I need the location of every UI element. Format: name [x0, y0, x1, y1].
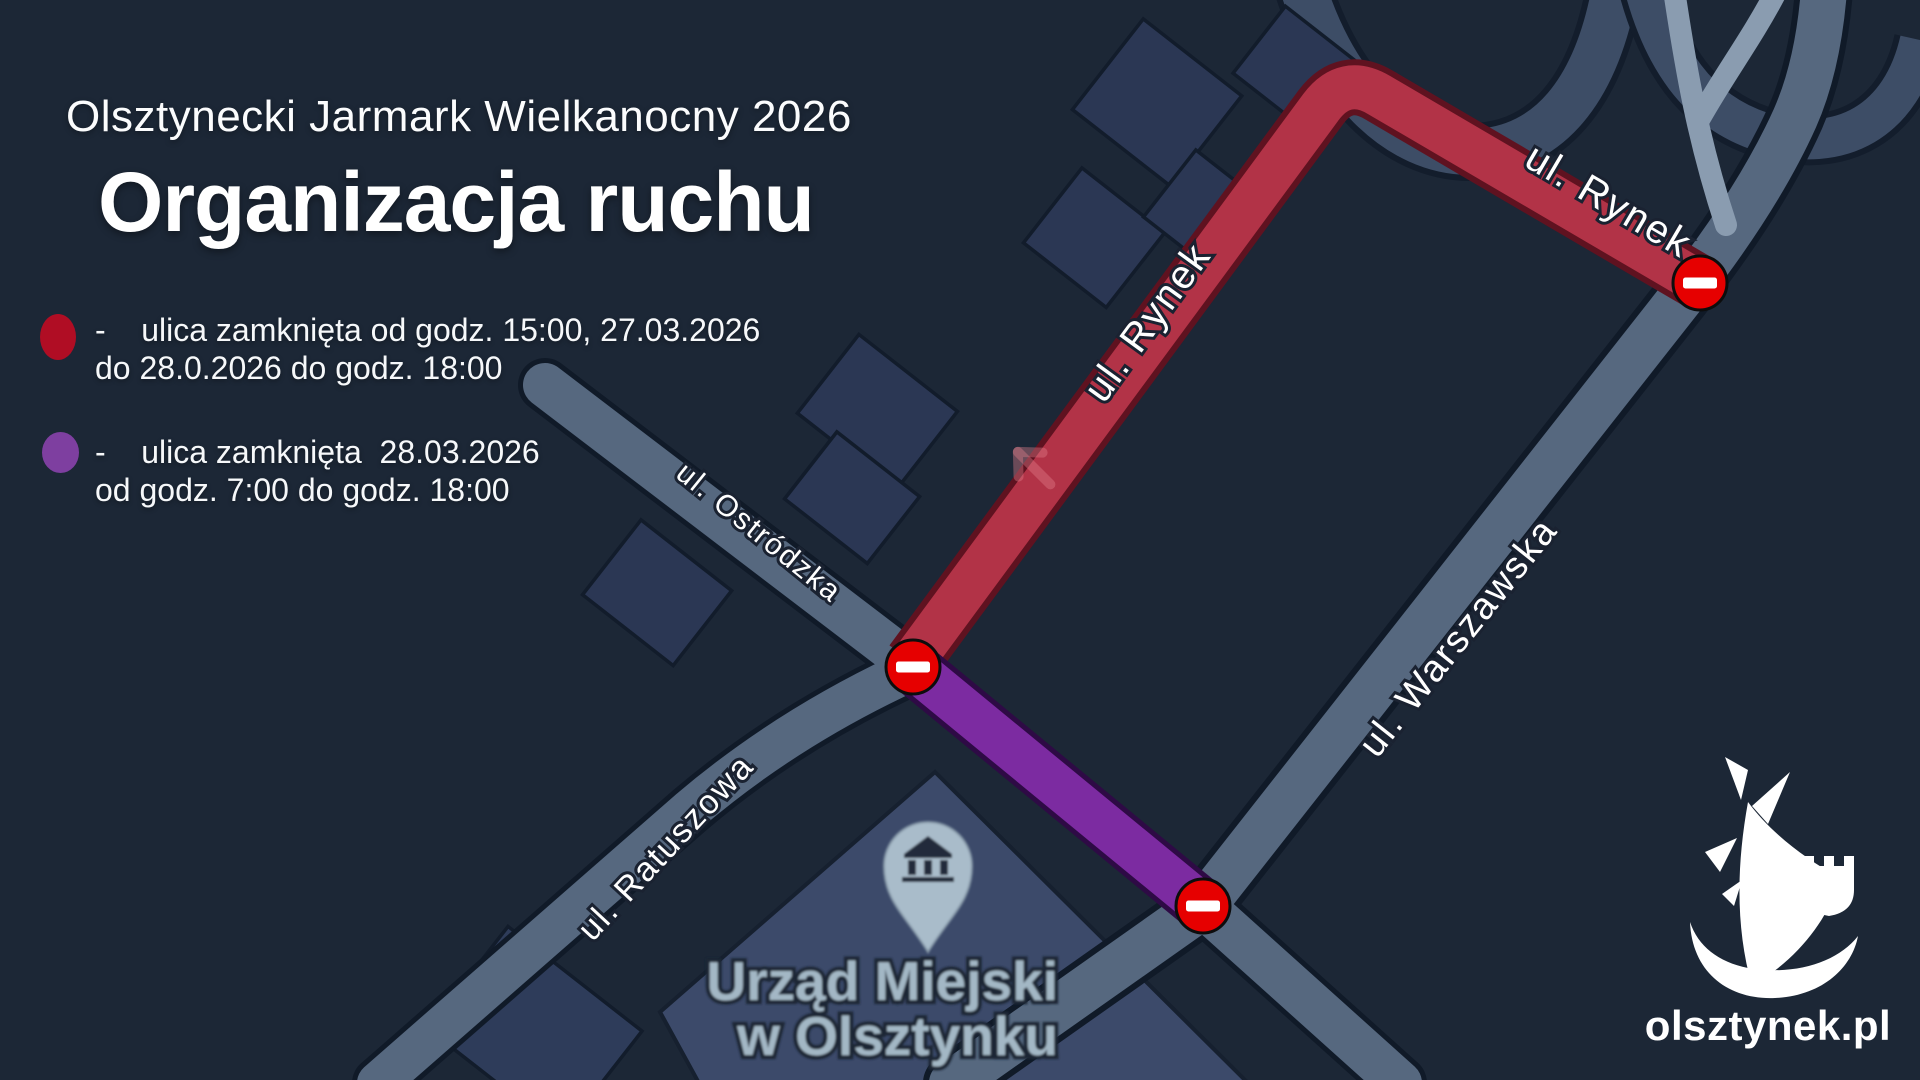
no-entry-icon [1176, 879, 1230, 933]
legend-dot-purple-closure [42, 432, 79, 473]
legend-dot-red-closure [40, 314, 76, 360]
no-entry-icon [886, 640, 940, 694]
no-entry-icon [1673, 256, 1727, 310]
legend-red-line1: - ulica zamknięta od godz. 15:00, 27.03.… [95, 312, 760, 348]
legend-purple-line2: od godz. 7:00 do godz. 18:00 [95, 472, 510, 508]
legend-purple-line1: - ulica zamknięta 28.03.2026 [95, 434, 540, 470]
city-hall-label: Urząd Miejski w Olsztynku [706, 950, 1058, 1067]
header: Olsztynecki Jarmark Wielkanocny 2026 Org… [66, 92, 852, 251]
city-hall-label-line1: Urząd Miejski [706, 950, 1058, 1012]
legend-red-line2: do 28.0.2026 do godz. 18:00 [95, 350, 502, 386]
city-hall-label-line2: w Olsztynku [736, 1005, 1058, 1067]
page-subtitle: Olsztynecki Jarmark Wielkanocny 2026 [66, 92, 852, 142]
legend-item-red-closure: - ulica zamknięta od godz. 15:00, 27.03.… [95, 311, 760, 387]
legend-item-purple-closure: - ulica zamknięta 28.03.2026od godz. 7:0… [95, 433, 540, 509]
page-title: Organizacja ruchu [98, 154, 852, 251]
logo-text: olsztynek.pl [1645, 1002, 1891, 1049]
traffic-organization-poster: ul. Rynek ul. Rynek ul. Ostródzka ul. Wa… [0, 0, 1920, 1080]
